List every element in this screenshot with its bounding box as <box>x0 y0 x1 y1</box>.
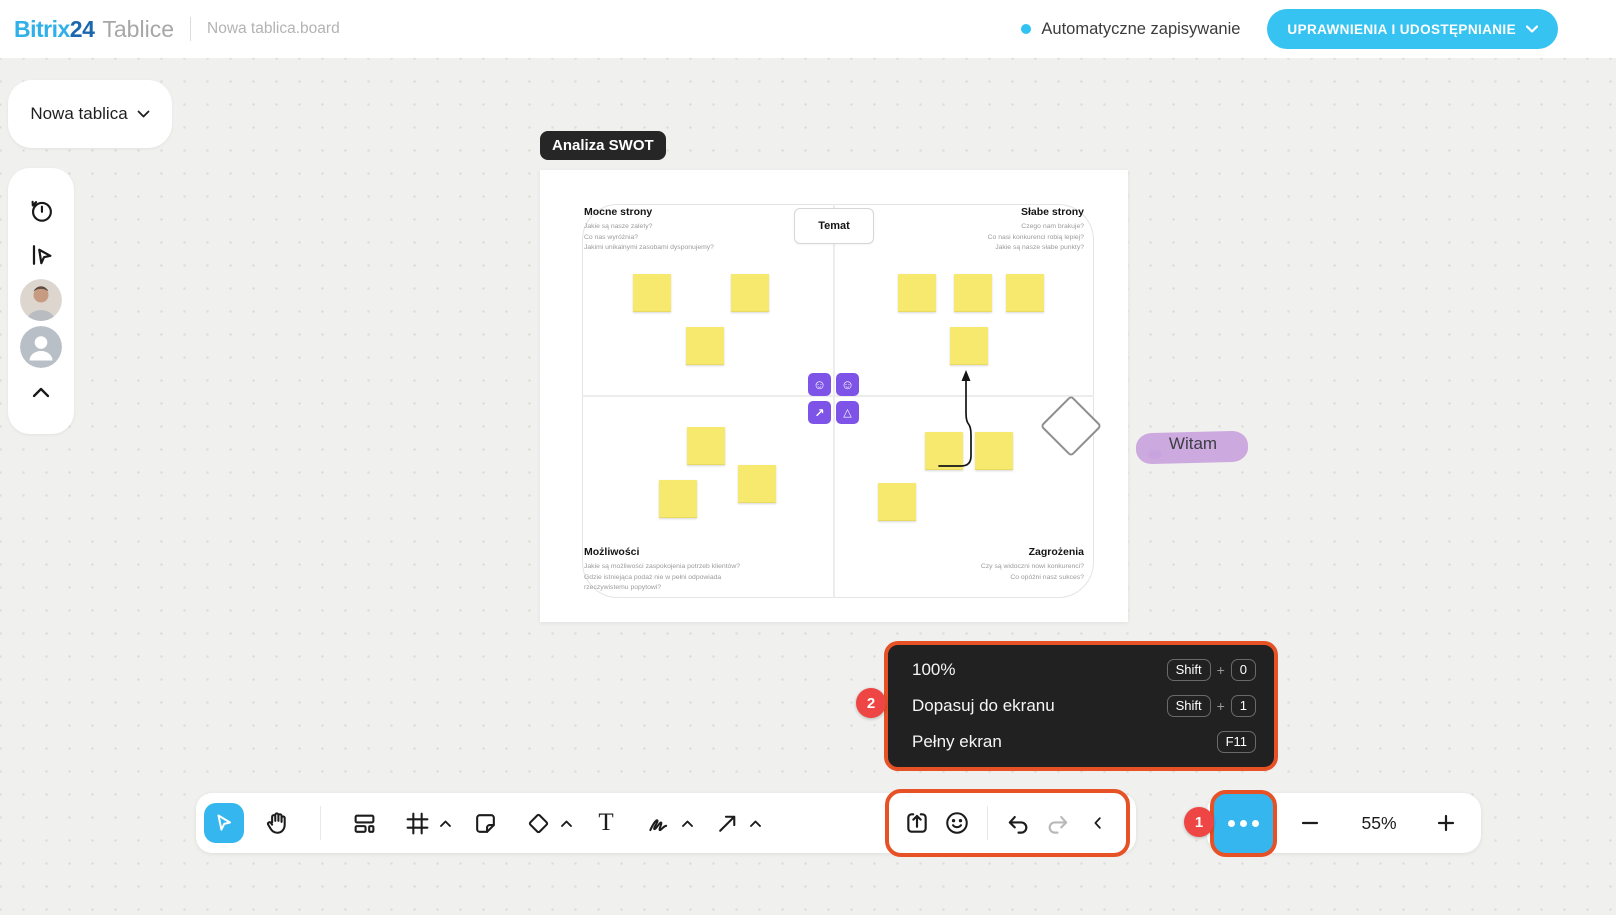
menu-item-fit-to-screen[interactable]: Dopasuj do ekranu Shift + 1 <box>912 695 1256 717</box>
dot-icon <box>1228 820 1235 827</box>
menu-item-label: 100% <box>912 660 955 680</box>
bitrix24-logo: Bitrix 24 Tablice <box>14 16 174 43</box>
hand-icon <box>264 810 290 836</box>
follow-cursor-button[interactable] <box>21 235 61 275</box>
autosave-label: Automatyczne zapisywanie <box>1041 20 1240 39</box>
swot-vertical-divider <box>833 204 835 598</box>
keycap: Shift <box>1167 659 1211 681</box>
person-icon <box>20 326 62 368</box>
chevron-left-icon <box>1089 814 1107 832</box>
menu-item-fullscreen[interactable]: Pełny ekran F11 <box>912 731 1256 753</box>
smiley-object[interactable]: ☺ <box>836 373 859 396</box>
chevron-down-icon <box>1526 25 1538 33</box>
shape-tool-button[interactable] <box>518 803 573 843</box>
quadrant-questions-opportunities: Jakie są możliwości zaspokojenia potrzeb… <box>584 562 740 594</box>
autosave-status: Automatyczne zapisywanie <box>1021 20 1240 39</box>
cursor-icon <box>212 811 236 835</box>
layout-icon <box>352 811 377 836</box>
dot-icon <box>1252 820 1259 827</box>
redo-icon <box>1045 810 1071 836</box>
more-options-button[interactable] <box>1210 790 1277 857</box>
diamond-shape[interactable] <box>1041 396 1101 456</box>
permissions-share-button[interactable]: UPRAWNIENIA I UDOSTĘPNIANIE <box>1267 9 1558 49</box>
shortcut-keys: Shift + 1 <box>1167 695 1256 717</box>
upload-icon <box>904 810 930 836</box>
keycap: Shift <box>1167 695 1211 717</box>
select-tool-button[interactable] <box>204 803 244 843</box>
shortcut-keys: Shift + 0 <box>1167 659 1256 681</box>
chevron-up-icon <box>32 386 50 398</box>
sticky-note[interactable] <box>1006 274 1044 312</box>
logo-24: 24 <box>70 16 95 43</box>
pen-tool-button[interactable] <box>639 803 694 843</box>
hand-tool-button[interactable] <box>257 803 297 843</box>
pen-scribble-icon <box>646 810 672 836</box>
frame-tool-button[interactable] <box>397 803 452 843</box>
keycap: F11 <box>1217 731 1256 753</box>
text-tool-icon: T <box>598 809 613 837</box>
board-selector-dropdown[interactable]: Nowa tablica <box>8 80 172 148</box>
menu-item-100-percent[interactable]: 100% Shift + 0 <box>912 659 1256 681</box>
guest-avatar-placeholder[interactable] <box>20 326 62 368</box>
quadrant-title-strengths: Mocne strony <box>584 206 652 218</box>
sticky-note[interactable] <box>878 483 916 521</box>
quadrant-questions-weaknesses: Czego nam brakuje? Co nasi konkurenci ro… <box>988 222 1084 254</box>
sticky-note[interactable] <box>731 274 769 312</box>
toolbar-divider <box>987 806 988 840</box>
tutorial-step-2-badge: 2 <box>856 688 886 718</box>
zoom-out-button[interactable] <box>1293 806 1327 840</box>
quadrant-title-weaknesses: Słabe strony <box>1021 206 1084 218</box>
quadrant-questions-threats: Czy są widoczni nowi konkurenci? Co opóź… <box>981 562 1084 583</box>
toolbar-divider <box>320 806 321 840</box>
sticky-note-tool-button[interactable] <box>465 803 505 843</box>
frame-icon <box>405 811 430 836</box>
chevron-up-icon <box>749 819 762 828</box>
tutorial-step-1-badge: 1 <box>1184 807 1214 837</box>
logo-bitrix: Bitrix <box>14 16 70 43</box>
sticky-note-icon <box>473 811 498 836</box>
permissions-share-label: UPRAWNIENIA I UDOSTĘPNIANIE <box>1287 22 1516 37</box>
diamond-icon <box>526 811 551 836</box>
sticky-note[interactable] <box>975 432 1013 470</box>
sticky-note[interactable] <box>686 327 724 365</box>
view-options-menu: 100% Shift + 0 Dopasuj do ekranu Shift +… <box>884 641 1278 771</box>
top-bar: Bitrix 24 Tablice Nowa tablica.board Aut… <box>0 0 1616 58</box>
arrow-icon <box>715 811 740 836</box>
quadrant-title-opportunities: Możliwości <box>584 546 639 558</box>
sticky-note[interactable] <box>659 480 697 518</box>
avatar-photo-image <box>20 279 62 321</box>
swot-frame[interactable]: Mocne strony Jakie są nasze zalety? Co n… <box>540 170 1128 622</box>
shortcut-keys: F11 <box>1217 731 1256 753</box>
sticky-note[interactable] <box>925 432 963 470</box>
dot-icon <box>1240 820 1247 827</box>
sticky-note[interactable] <box>687 427 725 465</box>
whiteboard-canvas[interactable]: Nowa tablica <box>0 58 1616 915</box>
text-tool-button[interactable]: T <box>586 803 626 843</box>
board-selector-label: Nowa tablica <box>30 104 127 124</box>
emoji-tool-button[interactable] <box>937 803 977 843</box>
chevron-down-icon <box>137 110 150 118</box>
layout-tool-button[interactable] <box>344 803 384 843</box>
arrow-tool-button[interactable] <box>707 803 762 843</box>
plus-icon <box>1435 812 1457 834</box>
user-avatar-photo[interactable] <box>20 279 62 321</box>
zoom-in-button[interactable] <box>1429 806 1463 840</box>
topic-box[interactable]: Temat <box>794 208 874 244</box>
upload-tool-button[interactable] <box>897 803 937 843</box>
timer-icon <box>28 197 55 224</box>
trend-up-object[interactable]: ↗ <box>808 401 831 424</box>
chevron-up-icon <box>681 819 694 828</box>
menu-item-label: Dopasuj do ekranu <box>912 696 1055 716</box>
autosave-dot-icon <box>1021 24 1031 34</box>
undo-icon <box>1005 810 1031 836</box>
timer-button[interactable] <box>21 190 61 230</box>
redo-button[interactable] <box>1038 803 1078 843</box>
frame-title[interactable]: Analiza SWOT <box>540 131 666 160</box>
sticky-note[interactable] <box>738 465 776 503</box>
chevron-up-icon <box>439 819 452 828</box>
sticky-note[interactable] <box>633 274 671 312</box>
highlighted-toolbar-section <box>885 789 1130 857</box>
menu-item-label: Pełny ekran <box>912 732 1002 752</box>
app-window: Bitrix 24 Tablice Nowa tablica.board Aut… <box>0 0 1616 915</box>
key-plus-separator: + <box>1217 698 1225 714</box>
left-tool-rail <box>8 168 74 434</box>
sticky-note[interactable] <box>898 274 936 312</box>
undo-button[interactable] <box>998 803 1038 843</box>
quadrant-title-threats: Zagrożenia <box>1029 546 1084 558</box>
quadrant-questions-strengths: Jakie są nasze zalety? Co nas wyróżnia? … <box>584 222 714 254</box>
sticky-note[interactable] <box>954 274 992 312</box>
warning-triangle-object[interactable]: △ <box>836 401 859 424</box>
breadcrumb-divider <box>190 17 191 41</box>
zoom-level[interactable]: 55% <box>1337 793 1421 853</box>
sticky-note[interactable] <box>950 327 988 365</box>
note-text: Witam <box>1136 434 1250 454</box>
bottom-toolbar: T <box>196 793 1136 853</box>
logo-product: Tablice <box>102 16 174 43</box>
emoji-smiley-icon <box>944 810 970 836</box>
keycap: 1 <box>1231 695 1256 717</box>
highlighted-text-note[interactable]: Witam <box>1136 426 1250 466</box>
smiley-object[interactable]: ☺ <box>808 373 831 396</box>
collapse-toolbar-button[interactable] <box>1078 803 1118 843</box>
chevron-up-icon <box>560 819 573 828</box>
minus-icon <box>1299 812 1321 834</box>
breadcrumb: Nowa tablica.board <box>207 20 340 38</box>
collapse-rail-button[interactable] <box>21 372 61 412</box>
follow-cursor-icon <box>27 241 55 269</box>
keycap: 0 <box>1231 659 1256 681</box>
key-plus-separator: + <box>1217 662 1225 678</box>
